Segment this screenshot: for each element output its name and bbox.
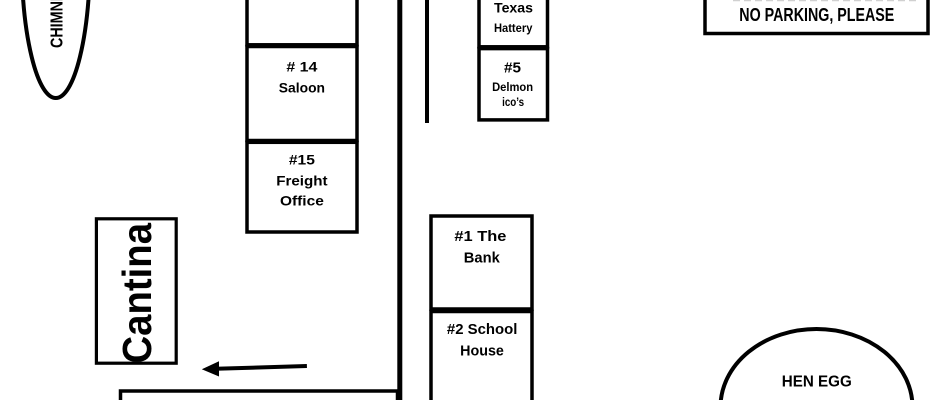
svg-text:HEN EGG: HEN EGG [782,374,852,391]
svg-text:ico’s: ico’s [502,97,524,109]
svg-text:# 14: # 14 [286,58,317,74]
svg-text:Freight: Freight [276,173,328,189]
svg-text:#5: #5 [504,61,521,77]
svg-text:NO PARKING, PLEASE: NO PARKING, PLEASE [739,4,894,25]
svg-text:#1 The: #1 The [454,229,506,245]
svg-text:Bank: Bank [464,251,501,267]
svg-text:Delmon: Delmon [492,82,533,94]
svg-text:Cantina: Cantina [114,223,160,364]
svg-text:#15: #15 [289,152,315,168]
svg-text:Hattery: Hattery [494,23,533,35]
svg-text:CHIMNEY: CHIMNEY [47,0,67,48]
svg-text:Office: Office [280,193,324,209]
svg-text:Texas: Texas [494,1,533,16]
svg-text:Saloon: Saloon [279,80,325,96]
svg-text:#2 School: #2 School [447,322,518,338]
svg-text:House: House [460,344,504,360]
